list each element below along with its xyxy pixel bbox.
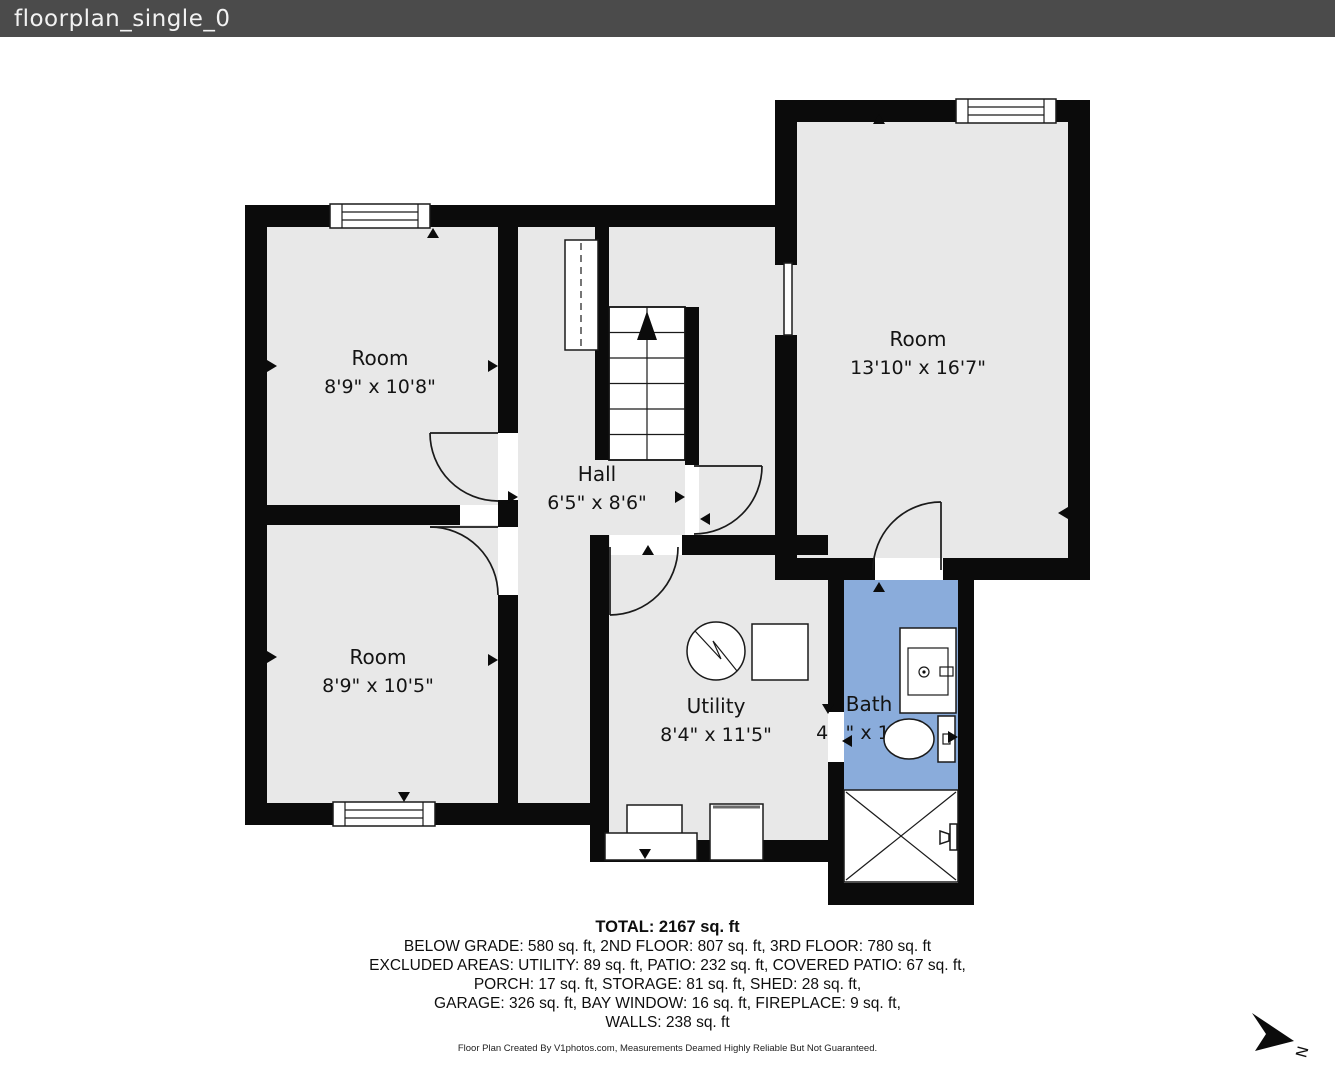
toilet — [884, 716, 955, 762]
window-top-left-room — [330, 204, 430, 228]
summary-line-2: EXCLUDED AREAS: UTILITY: 89 sq. ft, PATI… — [0, 956, 1335, 975]
vanity-sink — [900, 628, 956, 713]
room2-dims: 13'10" x 16'7" — [850, 357, 986, 379]
room3-dims: 8'9" x 10'5" — [322, 675, 434, 697]
utility-dims: 8'4" x 11'5" — [660, 724, 772, 746]
total-area: TOTAL: 2167 sq. ft — [0, 918, 1335, 937]
north-arrow-icon — [1252, 1013, 1294, 1051]
appliance-box — [752, 624, 808, 680]
summary-line-5: WALLS: 238 sq. ft — [0, 1013, 1335, 1032]
closet — [565, 240, 598, 350]
shower — [844, 790, 958, 882]
room1-name: Room — [352, 346, 409, 370]
window-bottom-left-room — [333, 802, 435, 826]
hall-dims: 6'5" x 8'6" — [547, 492, 647, 514]
area-summary: TOTAL: 2167 sq. ft BELOW GRADE: 580 sq. … — [0, 918, 1335, 1054]
room2-name: Room — [890, 327, 947, 351]
summary-line-3: PORCH: 17 sq. ft, STORAGE: 81 sq. ft, SH… — [0, 975, 1335, 994]
north-arrow: N — [1240, 1002, 1335, 1072]
room3-name: Room — [350, 645, 407, 669]
summary-line-1: BELOW GRADE: 580 sq. ft, 2ND FLOOR: 807 … — [0, 937, 1335, 956]
room1-dims: 8'9" x 10'8" — [324, 376, 436, 398]
hall-name: Hall — [578, 462, 616, 486]
screenshot-root: floorplan_single_0 4'1" x 11'7" — [0, 0, 1335, 1080]
summary-line-4: GARAGE: 326 sq. ft, BAY WINDOW: 16 sq. f… — [0, 994, 1335, 1013]
staircase — [609, 307, 685, 460]
north-label: N — [1291, 1044, 1311, 1060]
bath-name: Bath — [846, 692, 893, 716]
credit-line: Floor Plan Created By V1photos.com, Meas… — [0, 1043, 1335, 1054]
utility-name: Utility — [687, 694, 746, 718]
wall-opening-panel — [784, 263, 792, 335]
window-big-room — [956, 99, 1056, 123]
water-heater-icon — [687, 622, 745, 680]
